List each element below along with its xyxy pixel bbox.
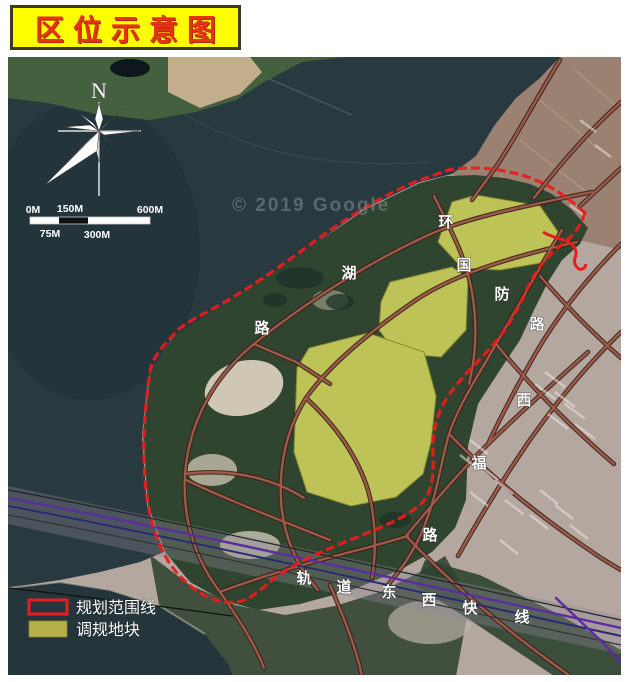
scale-segment-3	[88, 217, 150, 224]
rail-line-char-3: 东	[381, 583, 396, 601]
google-watermark: © 2019 Google	[232, 195, 390, 216]
scale-label-600m: 600M	[137, 204, 164, 216]
page: 区位示意图	[0, 0, 632, 682]
pond	[110, 59, 150, 77]
legend-label-planning-boundary: 规划范围线	[76, 599, 156, 617]
scale-segment-1	[30, 217, 59, 224]
legend-label-adjustment-plot: 调规地块	[76, 621, 140, 639]
guofang-road-char-3: 路	[529, 315, 545, 333]
satellite-map: N 0M 150M 600M 75M 300M © 2019 Google 环 …	[8, 57, 621, 675]
rail-line-char-6: 线	[514, 608, 529, 626]
map-title-banner: 区位示意图	[10, 5, 241, 50]
legend-swatch-adjustment-plot	[29, 621, 67, 637]
rail-line-char-2: 道	[336, 578, 351, 596]
page-title: 区位示意图	[26, 7, 225, 49]
rail-line-char-4: 西	[421, 592, 436, 609]
xifu-road-char-3: 路	[422, 526, 438, 544]
scale-label-75m: 75M	[40, 228, 61, 240]
rail-line-char-1: 轨	[296, 569, 311, 587]
guofang-road-char-2: 防	[494, 285, 509, 303]
compass-north-label: N	[91, 78, 107, 103]
scale-segment-2	[59, 217, 88, 224]
scale-label-150m: 150M	[57, 203, 84, 215]
huanhu-road-char-2: 湖	[341, 265, 356, 282]
map-canvas: N 0M 150M 600M 75M 300M © 2019 Google 环 …	[8, 57, 621, 675]
huanhu-road-char-1: 环	[438, 214, 453, 231]
guofang-road-char-1: 国	[456, 257, 471, 274]
rail-line-char-5: 快	[462, 599, 478, 617]
xifu-road-char-1: 西	[516, 392, 531, 409]
huanhu-road-char-3: 路	[254, 319, 270, 337]
scale-label-0m: 0M	[26, 204, 41, 216]
xifu-road-char-2: 福	[470, 454, 486, 472]
scale-label-300m: 300M	[84, 229, 111, 241]
